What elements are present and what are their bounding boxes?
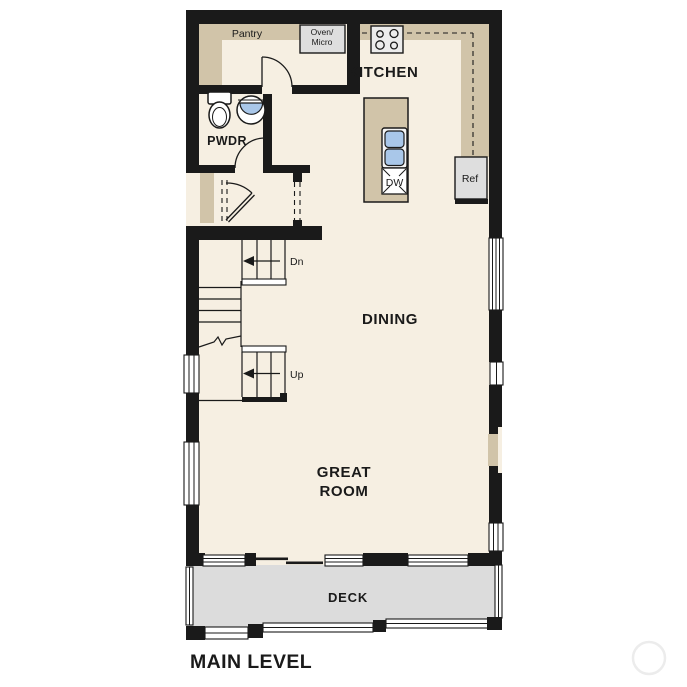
wall-pwdr-north-right xyxy=(292,85,360,94)
kitchen-label: KITCHEN xyxy=(348,64,419,81)
wall-right-upper xyxy=(489,10,502,238)
stove-icon xyxy=(371,26,403,53)
window-right-3 xyxy=(489,523,503,551)
wall-south-pier3 xyxy=(363,553,408,566)
window-right-2 xyxy=(490,362,503,385)
kitchen-island: DW xyxy=(364,98,408,202)
deck-railing-bottom-2 xyxy=(386,619,488,628)
window-south-3 xyxy=(408,555,468,566)
wall-vestibule-east-top xyxy=(293,173,302,182)
niche-cap-top xyxy=(489,427,498,434)
dishwasher-label: DW xyxy=(386,177,404,189)
pantry-label: Pantry xyxy=(232,28,263,40)
pantry-side-shelf xyxy=(199,24,222,86)
deck-railing-bottom-1 xyxy=(263,623,373,632)
oven-micro-label-1: Oven/ xyxy=(311,27,334,37)
great-room-label-2: ROOM xyxy=(319,483,368,500)
refrigerator-label: Ref xyxy=(462,173,478,185)
wall-left-mid xyxy=(186,393,199,442)
toilet-icon xyxy=(208,92,231,128)
window-left-2 xyxy=(184,442,199,505)
pwdr-label: PWDR xyxy=(207,134,247,148)
oven-micro-label-2: Micro xyxy=(312,37,333,47)
fireplace-niche xyxy=(488,434,498,466)
deck-label: DECK xyxy=(328,590,368,605)
watermark-circle-icon xyxy=(633,642,665,674)
floor-plan-drawing: Oven/ Micro DW Ref xyxy=(0,0,687,687)
deck-post-4 xyxy=(487,617,502,630)
dishwasher-icon: DW xyxy=(382,168,407,194)
plan-title: MAIN LEVEL xyxy=(190,651,312,673)
window-left-1 xyxy=(184,355,199,393)
niche-cap-bottom xyxy=(489,466,498,473)
wall-right-mid3 xyxy=(489,473,502,523)
great-room-label-1: GREAT xyxy=(317,464,371,481)
stairs-up-label: Up xyxy=(290,369,304,381)
wall-top xyxy=(186,10,502,24)
island-sink-icon xyxy=(382,128,407,168)
dining-label: DINING xyxy=(362,311,418,328)
kitchen-right-counter xyxy=(461,24,489,157)
window-south-1 xyxy=(203,555,245,566)
wall-left-mid-upper xyxy=(186,227,199,355)
deck-step xyxy=(205,627,248,639)
deck-post-2 xyxy=(248,624,263,638)
pwdr-sink-icon xyxy=(237,96,265,124)
deck-post-3 xyxy=(373,620,386,632)
oven-micro: Oven/ Micro xyxy=(300,25,345,53)
counter-end-bar xyxy=(455,199,488,204)
wall-pwdr-south-left xyxy=(186,165,235,173)
wall-south-pier1 xyxy=(186,553,205,566)
wall-pwdr-south-right xyxy=(265,165,310,173)
stairs-down-label: Dn xyxy=(290,256,304,268)
wall-right-mid2 xyxy=(489,385,502,427)
wall-right-mid1 xyxy=(489,310,502,362)
wall-south-pier4 xyxy=(468,553,502,566)
window-south-2 xyxy=(325,555,363,566)
entry-closet xyxy=(200,173,214,223)
wall-stair-north xyxy=(186,226,322,240)
deck-railing-left xyxy=(186,567,193,625)
refrigerator-icon: Ref xyxy=(455,157,487,199)
window-right-1 xyxy=(489,238,503,310)
deck-post-1 xyxy=(186,626,205,640)
floor-plan-page: Oven/ Micro DW Ref xyxy=(0,0,687,687)
deck-railing-right xyxy=(495,565,502,618)
